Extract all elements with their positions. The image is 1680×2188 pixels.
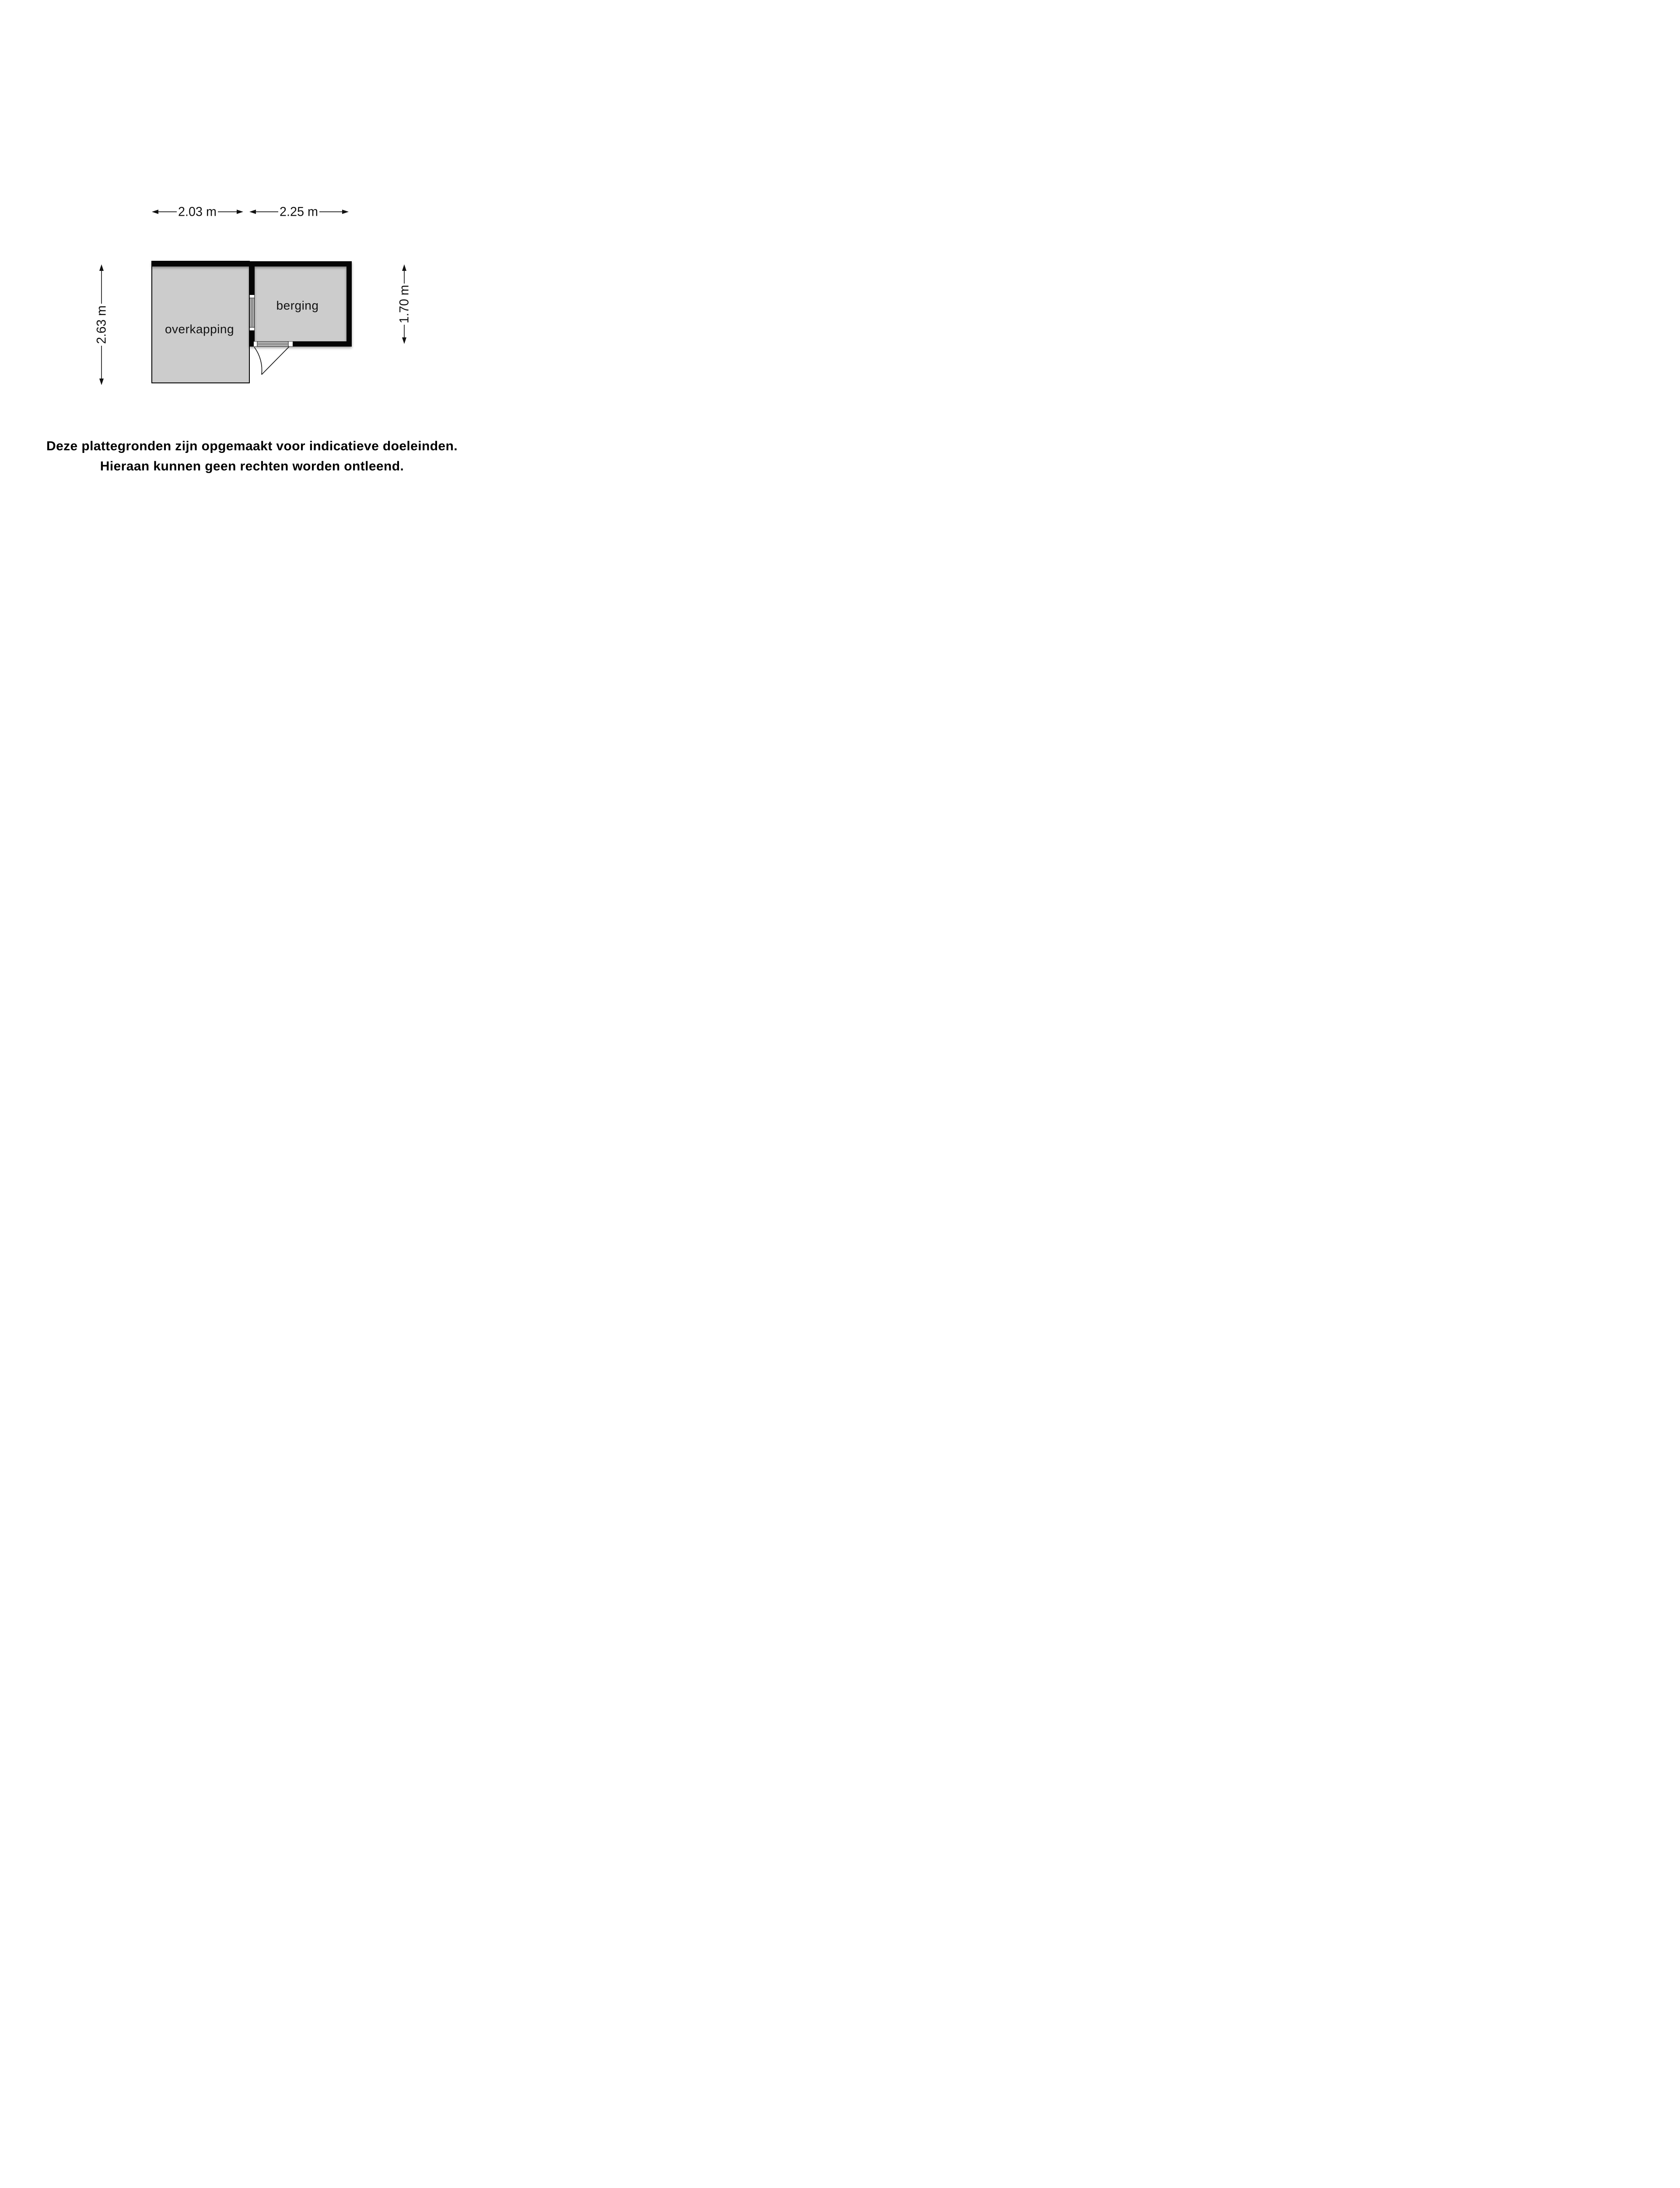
- door-post: [254, 342, 257, 347]
- arrow-down-icon: [402, 337, 406, 344]
- disclaimer-line-2: Hieraan kunnen geen rechten worden ontle…: [0, 456, 504, 477]
- door-leaf-line: [262, 347, 289, 375]
- door-post: [288, 342, 293, 347]
- window-end-cap: [250, 327, 254, 330]
- wall-top: [152, 261, 352, 266]
- room-label-overkapping: overkapping: [165, 323, 234, 336]
- arrow-right-icon: [342, 210, 349, 214]
- dimension-overkapping-height: 2.63 m: [94, 264, 109, 385]
- dimension-label-berging-width: 2.25 m: [280, 205, 318, 219]
- dimension-label-overkapping-height: 2.63 m: [94, 305, 109, 344]
- door-swing-arc: [254, 347, 262, 375]
- floorplan-drawing: 2.03 m 2.25 m 2.63 m 1.70 m: [0, 0, 504, 672]
- floorplan-canvas: 2.03 m 2.25 m 2.63 m 1.70 m: [0, 0, 504, 672]
- disclaimer: Deze plattegronden zijn opgemaakt voor i…: [0, 436, 504, 477]
- arrow-down-icon: [99, 379, 104, 385]
- dimension-label-berging-height: 1.70 m: [397, 285, 412, 323]
- door-threshold-icon: [257, 342, 288, 347]
- arrow-up-icon: [99, 264, 104, 271]
- arrow-left-icon: [249, 210, 256, 214]
- disclaimer-line-1: Deze plattegronden zijn opgemaakt voor i…: [0, 436, 504, 456]
- arrow-left-icon: [152, 210, 158, 214]
- door-swing-icon: [254, 347, 289, 375]
- dimension-label-overkapping-width: 2.03 m: [178, 205, 217, 219]
- dimension-overkapping-width: 2.03 m: [152, 205, 243, 219]
- window-icon: [250, 298, 254, 327]
- room-label-berging: berging: [276, 299, 319, 312]
- dimension-berging-height: 1.70 m: [397, 264, 412, 344]
- dimension-berging-width: 2.25 m: [249, 205, 349, 219]
- arrow-right-icon: [237, 210, 243, 214]
- window-end-cap: [250, 295, 254, 298]
- arrow-up-icon: [402, 264, 406, 271]
- wall-right: [346, 261, 352, 347]
